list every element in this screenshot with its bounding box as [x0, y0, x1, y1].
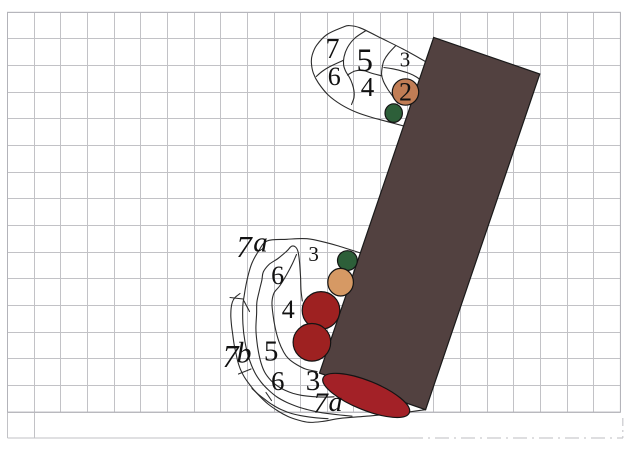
svg-text:7: 7: [313, 388, 329, 420]
svg-text:3: 3: [308, 242, 319, 266]
svg-text:4: 4: [282, 295, 295, 324]
svg-text:b: b: [237, 337, 252, 370]
svg-text:a: a: [329, 387, 343, 418]
svg-text:6: 6: [328, 62, 341, 91]
svg-text:2: 2: [399, 78, 412, 107]
svg-text:4: 4: [361, 72, 375, 102]
svg-text:7: 7: [236, 229, 253, 264]
svg-text:7: 7: [326, 34, 340, 65]
svg-text:5: 5: [264, 336, 279, 368]
svg-text:6: 6: [271, 366, 285, 396]
svg-text:6: 6: [271, 261, 284, 290]
svg-text:3: 3: [400, 48, 411, 72]
svg-text:a: a: [253, 227, 268, 259]
